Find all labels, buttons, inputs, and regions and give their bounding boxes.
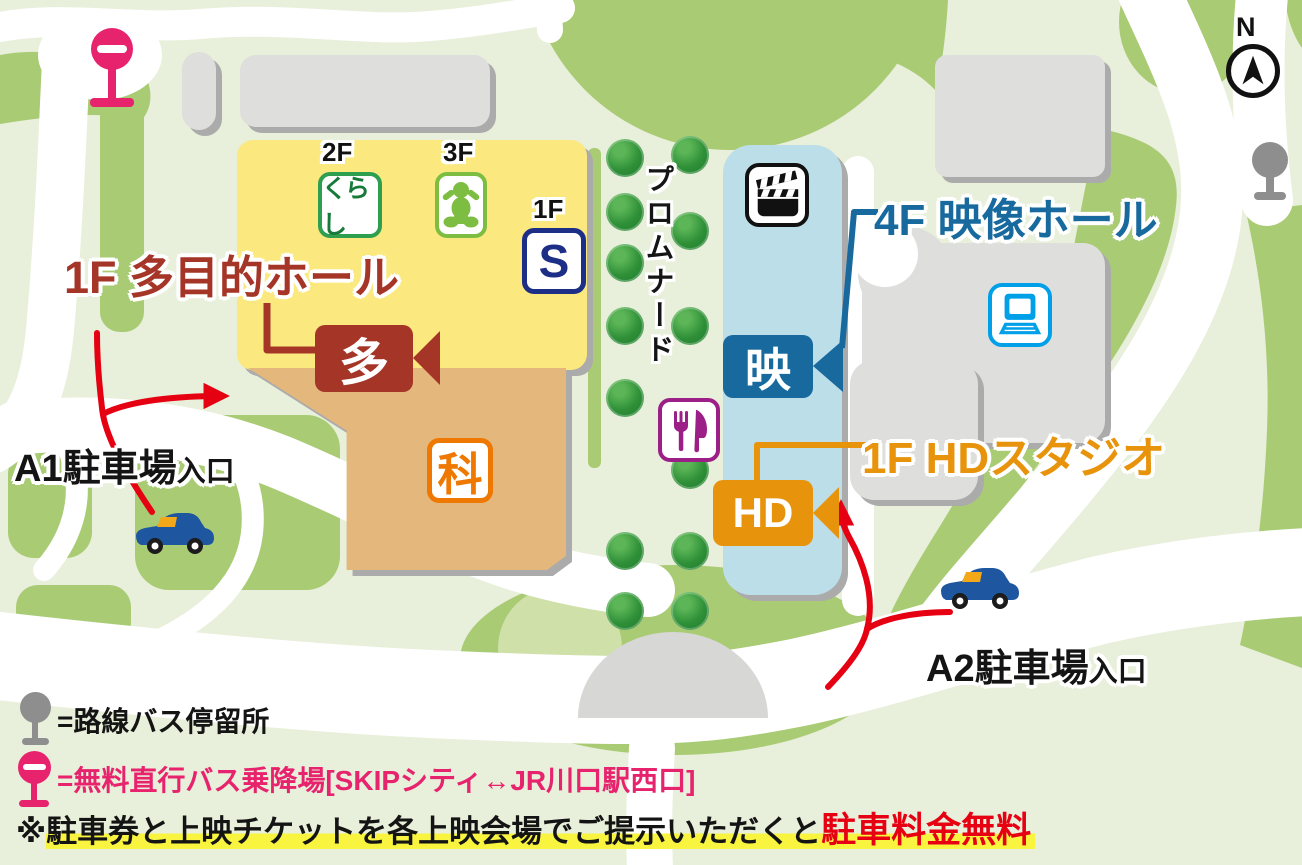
hd-studio-camera-icon: HD <box>713 480 813 546</box>
visual-hall-label: 4F 映像ホール <box>874 184 1158 248</box>
hd-studio-label: 1F HDスタジオ <box>862 422 1165 486</box>
legend-route-bus-text: =路線バス停留所 <box>57 700 269 740</box>
route-bus-stop-icon <box>1252 142 1292 202</box>
hd-studio-connector <box>757 445 868 484</box>
legend-free-bus-text: =無料直行バス乗降場[SKIPシティ↔JR川口駅西口] <box>57 759 695 799</box>
visual-hall-connector <box>842 212 878 348</box>
visual-hall-camera-icon: 映 <box>723 335 813 398</box>
free-shuttle-bus-stop-icon <box>81 28 143 108</box>
compass-north-label: N <box>1236 12 1256 43</box>
car-icon <box>938 560 1022 614</box>
compass-icon <box>1226 44 1280 98</box>
car-icon <box>133 505 217 559</box>
a1-parking-label: A1駐車場入口 <box>14 437 235 492</box>
legend-route-bus-icon <box>18 692 54 747</box>
facility-access-map: 2F くらし 3F 1F S 科 <box>0 0 1302 865</box>
multipurpose-hall-label: 1F 多目的ホール <box>64 241 399 306</box>
multipurpose-hall-camera-icon: 多 <box>315 325 413 392</box>
multipurpose-hall-connector <box>267 303 316 350</box>
a2-parking-label: A2駐車場入口 <box>926 637 1147 692</box>
legend-free-bus-icon <box>16 751 54 809</box>
parking-free-note: ※駐車券と上映チケットを各上映会場でご提示いただくと駐車料金無料 <box>16 802 1035 853</box>
